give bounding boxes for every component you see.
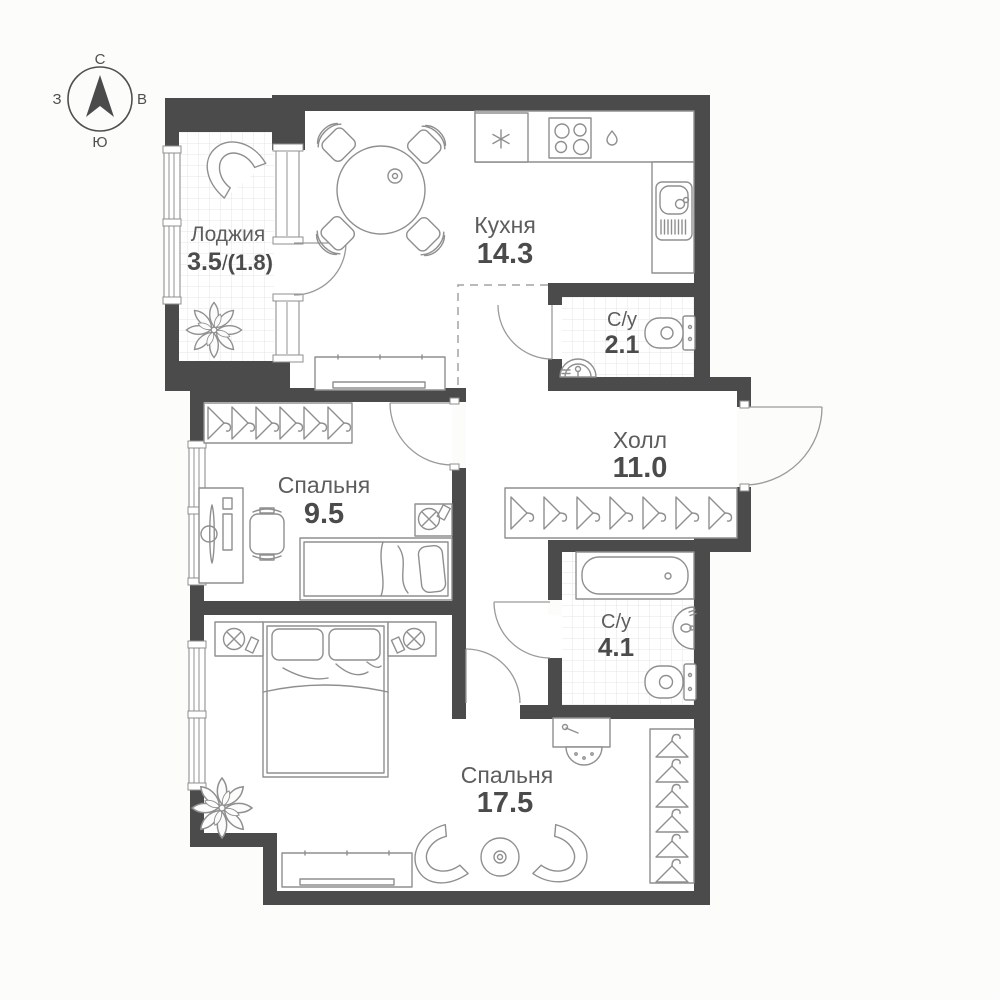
- door-arc: [740, 401, 822, 491]
- stove-icon: [549, 118, 591, 158]
- plant-icon: [186, 302, 241, 357]
- room-area-hall: 11.0: [613, 452, 668, 484]
- plant-icon: [192, 778, 252, 838]
- floor-plan-page: С В Ю З Лоджия 3.5/(1.8) Кухня 14.3 С/у …: [0, 0, 1000, 1000]
- room-area-wc-big: 4.1: [598, 632, 634, 662]
- tv-stand: [282, 851, 412, 887]
- room-label-bedroom-small: Спальня: [278, 472, 370, 498]
- compass-east-label: В: [137, 91, 147, 108]
- bathtub-icon: [576, 552, 694, 599]
- sink-icon: [656, 182, 692, 240]
- nightstand: [388, 622, 436, 656]
- double-bed-icon: [263, 622, 388, 777]
- compass-icon: С В Ю З: [52, 51, 147, 151]
- room-area-loggia: 3.5/(1.8): [187, 248, 273, 276]
- desk-icon: [199, 488, 243, 583]
- nightstand: [215, 622, 263, 656]
- floor-plan: С В Ю З Лоджия 3.5/(1.8) Кухня 14.3 С/у …: [0, 0, 1000, 1000]
- toilet-icon: [645, 316, 695, 350]
- room-label-wc-big: С/у: [601, 611, 631, 633]
- room-area-bedroom-small: 9.5: [304, 498, 344, 530]
- room-label-wc-small: С/у: [607, 309, 637, 331]
- toilet-icon: [645, 664, 696, 700]
- bedroom-big-wardrobe: [650, 729, 694, 883]
- room-area-wc-small: 2.1: [605, 331, 640, 359]
- fridge-icon: [475, 113, 528, 162]
- room-area-kitchen: 14.3: [477, 238, 533, 270]
- compass-south-label: Ю: [92, 134, 107, 151]
- room-label-loggia: Лоджия: [191, 223, 265, 246]
- tv-stand: [315, 355, 445, 390]
- window: [188, 641, 206, 790]
- hall-wardrobe: [505, 488, 737, 538]
- nightstand: [415, 504, 452, 536]
- room-label-hall: Холл: [613, 427, 667, 453]
- office-chair-icon: [250, 508, 284, 560]
- room-label-bedroom-big: Спальня: [461, 762, 553, 788]
- compass-arrow-icon: [86, 75, 114, 117]
- room-label-kitchen: Кухня: [474, 212, 536, 238]
- bedroom-small-wardrobe: [204, 403, 352, 443]
- compass-west-label: З: [52, 91, 61, 108]
- coffee-table-icon: [481, 838, 519, 876]
- compass-north-label: С: [95, 51, 106, 68]
- window: [163, 146, 181, 304]
- room-area-bedroom-big: 17.5: [477, 787, 533, 819]
- bed-icon: [300, 538, 452, 600]
